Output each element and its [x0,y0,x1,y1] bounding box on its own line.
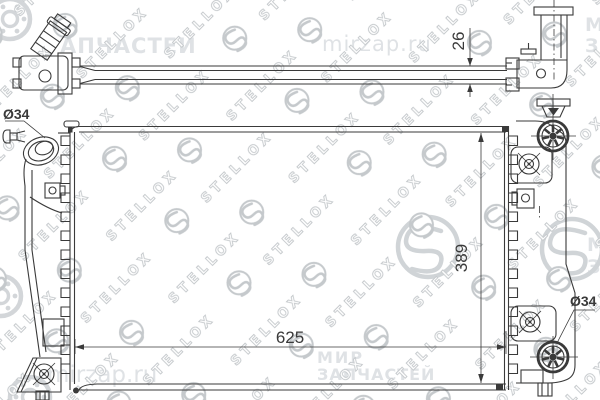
diameter-bottom-label: Ø34 [570,293,597,309]
dimension-thickness-label: 26 [449,32,468,51]
diameter-top-label: Ø34 [3,106,30,122]
dimension-height-label: 389 [452,244,471,272]
radiator-technical-drawing: АПЧАСТЕЙ mirzap.ru М З М З mirzap.ru МИР… [0,0,600,400]
dimension-width-label: 625 [276,328,304,347]
